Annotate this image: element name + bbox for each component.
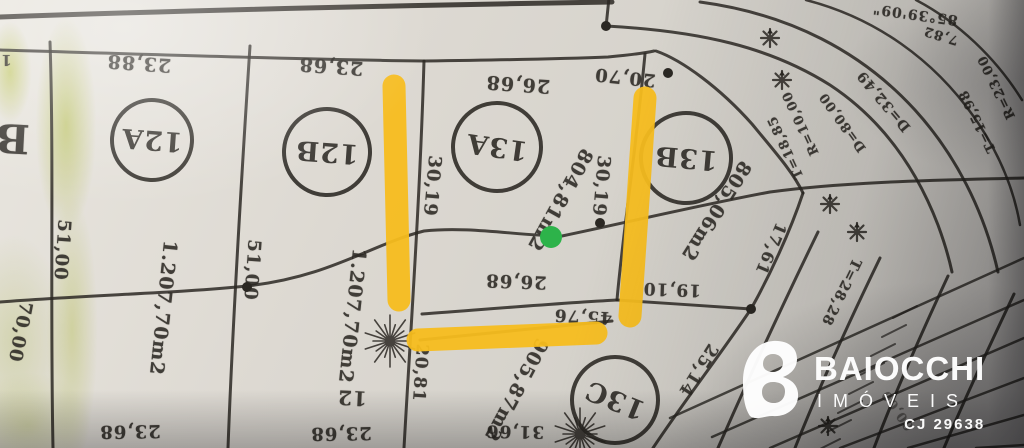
map-label-19-10: 19,10 (643, 278, 702, 300)
map-label-23-88: 23,88 (106, 50, 172, 76)
map-label-70-00: 70,00 (4, 300, 36, 364)
map-label-1: 1 (0, 51, 11, 69)
plat-map-scan: 23,8823,6826,6820,7030,1930,1951,0051,00… (0, 0, 1024, 448)
map-label-25-14: 25,14 (674, 340, 722, 400)
lot-line-v4 (617, 54, 645, 300)
map-label-26-68: 26,68 (485, 269, 547, 292)
map-label-805-06m2: 805,06m2 (676, 157, 755, 265)
lot-13C-top-edge (420, 321, 612, 340)
crossing-line (0, 178, 1024, 302)
map-label-R-23-00: R=23,00 (975, 53, 1019, 122)
map-label-T-28-28: T=28,28 (818, 256, 864, 329)
street-curve-outer (606, 26, 952, 272)
lot-number: 13C (580, 374, 649, 426)
highlighter-stroke (394, 86, 399, 300)
lot-13B-corner-curve (656, 51, 803, 193)
green-marker-dot (540, 226, 562, 248)
lot-13B-east-edge (751, 193, 803, 309)
survey-node-dot (746, 304, 756, 314)
lot-circle-12B: 12B (279, 104, 375, 200)
map-label-51-00: 51,00 (49, 219, 74, 282)
map-label-31-66: 31,66 (486, 420, 545, 441)
survey-node-dot (242, 282, 252, 292)
block-border (0, 2, 612, 17)
lot-number: 12A (120, 122, 184, 157)
map-label-804-81m2: 804,81m2 (523, 145, 598, 255)
license-number: CJ 29638 (904, 416, 985, 433)
brand-subtitle: IMÓVEIS (817, 392, 969, 410)
baiocchi-watermark: BAIOCCHI IMÓVEIS CJ 29638 (742, 338, 985, 433)
map-label-51-00: 51,00 (239, 239, 264, 302)
border-connector (606, 0, 609, 27)
map-label-T-15-98: T=15,98 (956, 87, 999, 155)
lot-circle-13C: 13C (556, 341, 673, 448)
lot-circle-13B: 13B (635, 107, 737, 209)
map-label-23-68: 23,68 (310, 422, 372, 444)
survey-node-dot (663, 68, 673, 78)
map-label-23-68: 23,68 (99, 420, 161, 442)
map-label-26-68: 26,68 (485, 71, 551, 97)
map-label-D-80-00: D=80,00 (816, 89, 869, 154)
map-label-20-70: 20,70 (593, 63, 656, 90)
survey-node-dot (595, 218, 605, 228)
map-label-30-19: 30,19 (588, 155, 614, 218)
map-label-45-76: 45,76 (553, 304, 612, 327)
brand-name: BAIOCCHI (814, 352, 985, 385)
map-label-1-207-70m2: 1.207,70m2 (334, 247, 370, 384)
map-label-1-207-70m2: 1.207,70m2 (145, 239, 181, 376)
survey-star-icon (821, 195, 839, 213)
lot-13B-bottom-edge (617, 300, 751, 309)
highlighter-stroke (418, 333, 596, 340)
map-label-85-39-09-: 85°39'09" (871, 0, 958, 28)
sunburst-symbol-icon (365, 315, 414, 367)
map-label-7-82: 7,82 (922, 23, 960, 48)
map-label-T-18-85: T=18,85 (765, 113, 807, 181)
map-label-D-32-49: D=32,49 (854, 67, 914, 135)
lot-circle-13A: 13A (445, 95, 549, 199)
map-label-12: 12 (336, 385, 367, 411)
survey-star-icon (773, 71, 791, 89)
lot-13A-bottom-edge (422, 300, 617, 314)
street-curve-outer2 (806, 0, 1020, 225)
lot-13C-east-edge (653, 309, 751, 448)
street-curve-mid (700, 2, 998, 272)
map-label-17-61: 17,61 (751, 220, 790, 278)
baiocchi-b-heart-logo-icon (742, 338, 800, 420)
lot-line-v1 (50, 42, 53, 448)
map-label-R-10-00: R=10,00 (780, 88, 823, 157)
lot-number: 13A (464, 127, 529, 166)
lots-top-edge (0, 50, 654, 61)
street-curve-corner (916, 0, 1022, 100)
lot-number: 13B (653, 140, 719, 176)
map-label-23-68: 23,68 (298, 53, 364, 79)
map-label-30-19: 30,19 (419, 155, 445, 218)
survey-star-icon (848, 223, 866, 241)
map-label-B: B (0, 114, 31, 163)
lot-number: 12B (294, 134, 359, 169)
sunburst-symbol-icon (555, 408, 604, 448)
highlighter-stroke (630, 98, 645, 316)
map-label-905-87m2: 905,87m2 (480, 334, 553, 445)
survey-star-icon (761, 29, 779, 47)
survey-node-dot (601, 21, 611, 31)
lot-circle-12A: 12A (107, 95, 197, 185)
lot-line-v2 (228, 46, 250, 448)
lot-line-v3 (404, 61, 424, 448)
map-label-20-81: 20,81 (408, 343, 432, 402)
